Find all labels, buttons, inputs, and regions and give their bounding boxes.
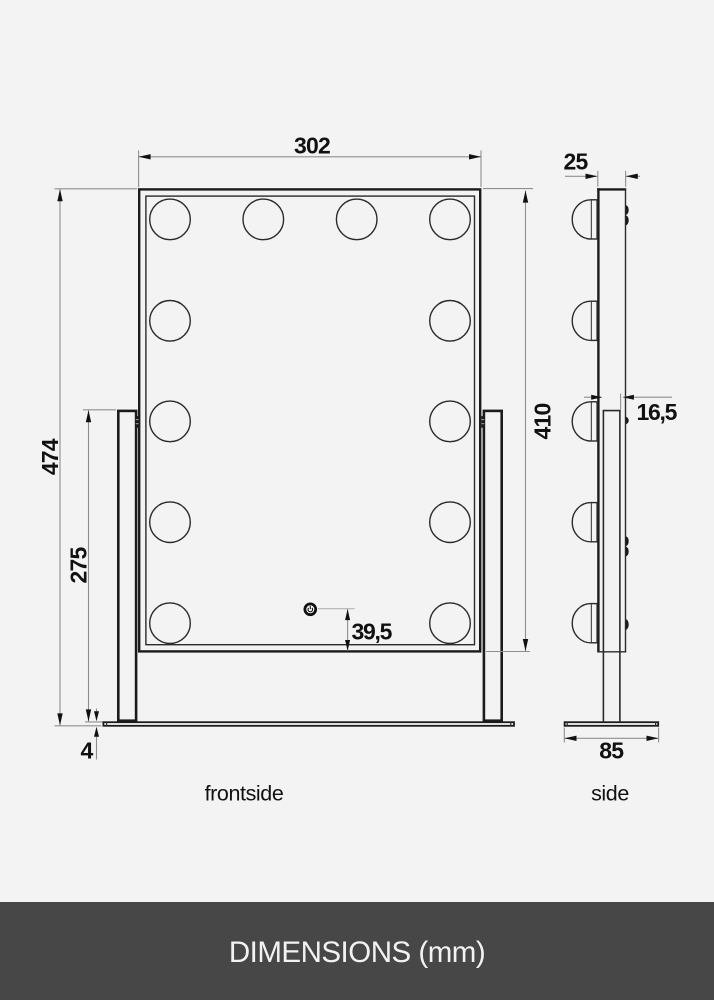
svg-text:25: 25 bbox=[564, 149, 589, 175]
svg-text:474: 474 bbox=[37, 438, 63, 475]
svg-text:410: 410 bbox=[529, 404, 555, 440]
svg-text:4: 4 bbox=[81, 738, 94, 764]
svg-text:16,5: 16,5 bbox=[637, 399, 678, 425]
svg-text:39,5: 39,5 bbox=[352, 619, 393, 645]
svg-text:DIMENSIONS (mm): DIMENSIONS (mm) bbox=[229, 936, 485, 969]
svg-text:302: 302 bbox=[294, 133, 330, 159]
svg-text:frontside: frontside bbox=[205, 782, 284, 806]
svg-text:85: 85 bbox=[599, 737, 624, 763]
svg-text:275: 275 bbox=[66, 547, 92, 584]
svg-text:side: side bbox=[591, 782, 629, 806]
